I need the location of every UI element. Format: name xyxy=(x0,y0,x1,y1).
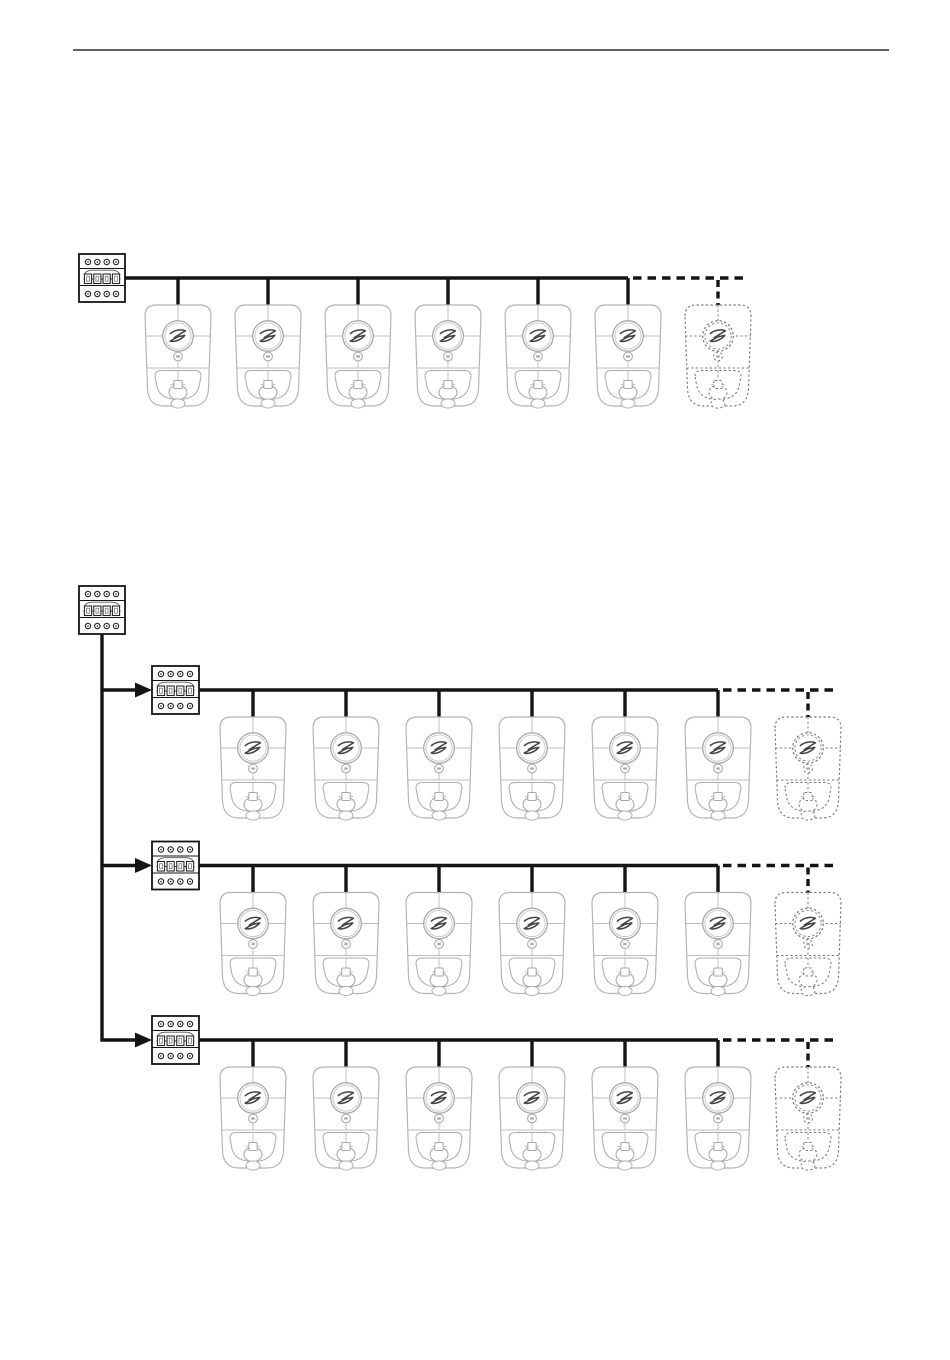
plug-cap xyxy=(714,1143,722,1151)
terminal-screw-dot xyxy=(106,593,108,595)
terminal-screw-dot xyxy=(87,293,89,295)
ev-charger-icon xyxy=(415,305,481,408)
ev-charger-icon xyxy=(685,1067,751,1170)
branch-breaker-icon xyxy=(152,1016,199,1064)
terminal-screw-dot xyxy=(97,593,99,595)
cable-gland-tab xyxy=(261,399,275,408)
terminal-screw-dot xyxy=(160,881,162,883)
plug-cap xyxy=(342,968,350,976)
plug-cap xyxy=(342,1143,350,1151)
cable-gland-tab xyxy=(432,811,446,820)
breaker-toggle-icon xyxy=(177,686,184,696)
ev-charger-icon xyxy=(499,893,565,996)
cable-gland-tab xyxy=(246,1161,260,1170)
cable-gland-tab xyxy=(339,1161,353,1170)
cable-gland-tab xyxy=(339,811,353,820)
breaker-toggle-icon xyxy=(157,862,164,872)
terminal-screw-dot xyxy=(180,705,182,707)
terminal-screw-dot xyxy=(180,849,182,851)
ev-charger-icon xyxy=(313,1067,379,1170)
breaker-toggle-icon xyxy=(94,606,101,616)
figure-2-branched-circuits xyxy=(79,586,841,1170)
cable-gland-tab xyxy=(801,986,815,995)
plug-cap xyxy=(435,1143,443,1151)
ev-charger-icon xyxy=(499,1067,565,1170)
terminal-screw-dot xyxy=(189,705,191,707)
plug-cap xyxy=(342,793,350,801)
breaker-toggle-icon xyxy=(157,686,164,696)
future-ev-charger-dotted-icon xyxy=(775,1067,841,1170)
cable-gland-tab xyxy=(525,1161,539,1170)
ev-charger-icon xyxy=(313,893,379,996)
terminal-screw-dot xyxy=(189,881,191,883)
cable-gland-tab xyxy=(246,811,260,820)
terminal-screw-dot xyxy=(160,673,162,675)
terminal-screw-dot xyxy=(170,673,172,675)
cable-gland-tab xyxy=(711,399,725,408)
wiring-diagram-canvas xyxy=(0,0,950,1360)
branch-breaker-icon xyxy=(152,666,199,714)
plug-cap xyxy=(534,381,542,389)
plug-cap xyxy=(264,381,272,389)
future-ev-charger-dotted-icon xyxy=(685,305,751,408)
terminal-screw-dot xyxy=(189,1055,191,1057)
terminal-screw-dot xyxy=(160,1055,162,1057)
ev-charger-icon xyxy=(220,1067,286,1170)
branch-feed-arrow-icon xyxy=(135,1033,152,1048)
terminal-screw-dot xyxy=(170,849,172,851)
ev-charger-icon xyxy=(406,893,472,996)
ev-charger-icon xyxy=(505,305,571,408)
plug-cap xyxy=(714,381,722,389)
future-ev-charger-dotted-icon xyxy=(775,717,841,820)
terminal-screw-dot xyxy=(106,261,108,263)
terminal-screw-dot xyxy=(189,849,191,851)
future-ev-charger-dotted-icon xyxy=(775,893,841,996)
terminal-screw-dot xyxy=(115,593,117,595)
breaker-toggle-icon xyxy=(84,274,91,284)
breaker-toggle-icon xyxy=(112,606,119,616)
ev-charger-icon xyxy=(235,305,301,408)
terminal-screw-dot xyxy=(160,849,162,851)
cable-gland-tab xyxy=(246,986,260,995)
branch-circuit-3 xyxy=(135,1016,841,1170)
cable-gland-tab xyxy=(801,811,815,820)
cable-gland-tab xyxy=(441,399,455,408)
breaker-toggle-icon xyxy=(103,606,110,616)
terminal-screw-dot xyxy=(189,673,191,675)
plug-cap xyxy=(435,793,443,801)
plug-cap xyxy=(528,1143,536,1151)
branch-breaker-icon xyxy=(152,842,199,890)
branch-circuit-2 xyxy=(102,842,841,996)
plug-cap xyxy=(621,968,629,976)
terminal-screw-dot xyxy=(170,1023,172,1025)
plug-cap xyxy=(249,793,257,801)
ev-charger-icon xyxy=(499,717,565,820)
terminal-screw-dot xyxy=(115,293,117,295)
terminal-screw-dot xyxy=(106,625,108,627)
ev-charger-icon xyxy=(313,717,379,820)
cable-gland-tab xyxy=(711,986,725,995)
terminal-screw-dot xyxy=(106,293,108,295)
plug-cap xyxy=(174,381,182,389)
terminal-screw-dot xyxy=(180,1023,182,1025)
terminal-screw-dot xyxy=(160,705,162,707)
terminal-screw-dot xyxy=(87,261,89,263)
cable-gland-tab xyxy=(171,399,185,408)
breaker-toggle-icon xyxy=(167,686,174,696)
ev-charger-icon xyxy=(325,305,391,408)
ev-charger-icon xyxy=(592,893,658,996)
plug-cap xyxy=(249,968,257,976)
supply-breaker-icon xyxy=(79,254,125,302)
cable-gland-tab xyxy=(432,1161,446,1170)
terminal-screw-dot xyxy=(170,1055,172,1057)
ev-charger-icon xyxy=(406,1067,472,1170)
breaker-toggle-icon xyxy=(177,1036,184,1046)
figure-1-single-circuit xyxy=(79,254,751,408)
cable-gland-tab xyxy=(711,811,725,820)
ev-charger-icon xyxy=(595,305,661,408)
plug-cap xyxy=(714,793,722,801)
breaker-toggle-icon xyxy=(167,1036,174,1046)
plug-cap xyxy=(249,1143,257,1151)
plug-cap xyxy=(624,381,632,389)
cable-gland-tab xyxy=(618,1161,632,1170)
cable-gland-tab xyxy=(801,1161,815,1170)
breaker-toggle-icon xyxy=(157,1036,164,1046)
breaker-toggle-icon xyxy=(177,862,184,872)
breaker-toggle-icon xyxy=(94,274,101,284)
terminal-screw-dot xyxy=(180,881,182,883)
terminal-screw-dot xyxy=(97,293,99,295)
terminal-screw-dot xyxy=(87,593,89,595)
terminal-screw-dot xyxy=(97,625,99,627)
terminal-screw-dot xyxy=(97,261,99,263)
ev-charger-icon xyxy=(220,893,286,996)
terminal-screw-dot xyxy=(189,1023,191,1025)
ev-charger-icon xyxy=(592,1067,658,1170)
plug-cap xyxy=(444,381,452,389)
cable-gland-tab xyxy=(525,986,539,995)
terminal-screw-dot xyxy=(180,673,182,675)
branch-feed-arrow-icon xyxy=(135,683,152,698)
plug-cap xyxy=(621,1143,629,1151)
manual-page xyxy=(0,0,950,1360)
plug-cap xyxy=(804,793,812,801)
terminal-screw-dot xyxy=(170,881,172,883)
breaker-toggle-icon xyxy=(186,1036,193,1046)
plug-cap xyxy=(804,968,812,976)
plug-cap xyxy=(528,793,536,801)
terminal-screw-dot xyxy=(160,1023,162,1025)
plug-cap xyxy=(354,381,362,389)
terminal-screw-dot xyxy=(115,261,117,263)
cable-gland-tab xyxy=(618,811,632,820)
cable-gland-tab xyxy=(618,986,632,995)
main-breaker-icon xyxy=(79,586,125,634)
cable-gland-tab xyxy=(621,399,635,408)
cable-gland-tab xyxy=(351,399,365,408)
plug-cap xyxy=(621,793,629,801)
cable-gland-tab xyxy=(711,1161,725,1170)
branch-circuit-1 xyxy=(102,666,841,820)
cable-gland-tab xyxy=(531,399,545,408)
ev-charger-icon xyxy=(406,717,472,820)
plug-cap xyxy=(528,968,536,976)
terminal-screw-dot xyxy=(87,625,89,627)
ev-charger-icon xyxy=(592,717,658,820)
cable-gland-tab xyxy=(339,986,353,995)
breaker-toggle-icon xyxy=(186,862,193,872)
breaker-toggle-icon xyxy=(84,606,91,616)
main-feeder-line xyxy=(102,632,137,1040)
cable-gland-tab xyxy=(525,811,539,820)
ev-charger-icon xyxy=(685,717,751,820)
ev-charger-icon xyxy=(685,893,751,996)
breaker-toggle-icon xyxy=(103,274,110,284)
plug-cap xyxy=(804,1143,812,1151)
ev-charger-icon xyxy=(145,305,211,408)
cable-gland-tab xyxy=(432,986,446,995)
terminal-screw-dot xyxy=(180,1055,182,1057)
ev-charger-icon xyxy=(220,717,286,820)
terminal-screw-dot xyxy=(115,625,117,627)
terminal-screw-dot xyxy=(170,705,172,707)
plug-cap xyxy=(435,968,443,976)
branch-feed-arrow-icon xyxy=(135,858,152,873)
plug-cap xyxy=(714,968,722,976)
breaker-toggle-icon xyxy=(112,274,119,284)
breaker-toggle-icon xyxy=(167,862,174,872)
breaker-toggle-icon xyxy=(186,686,193,696)
